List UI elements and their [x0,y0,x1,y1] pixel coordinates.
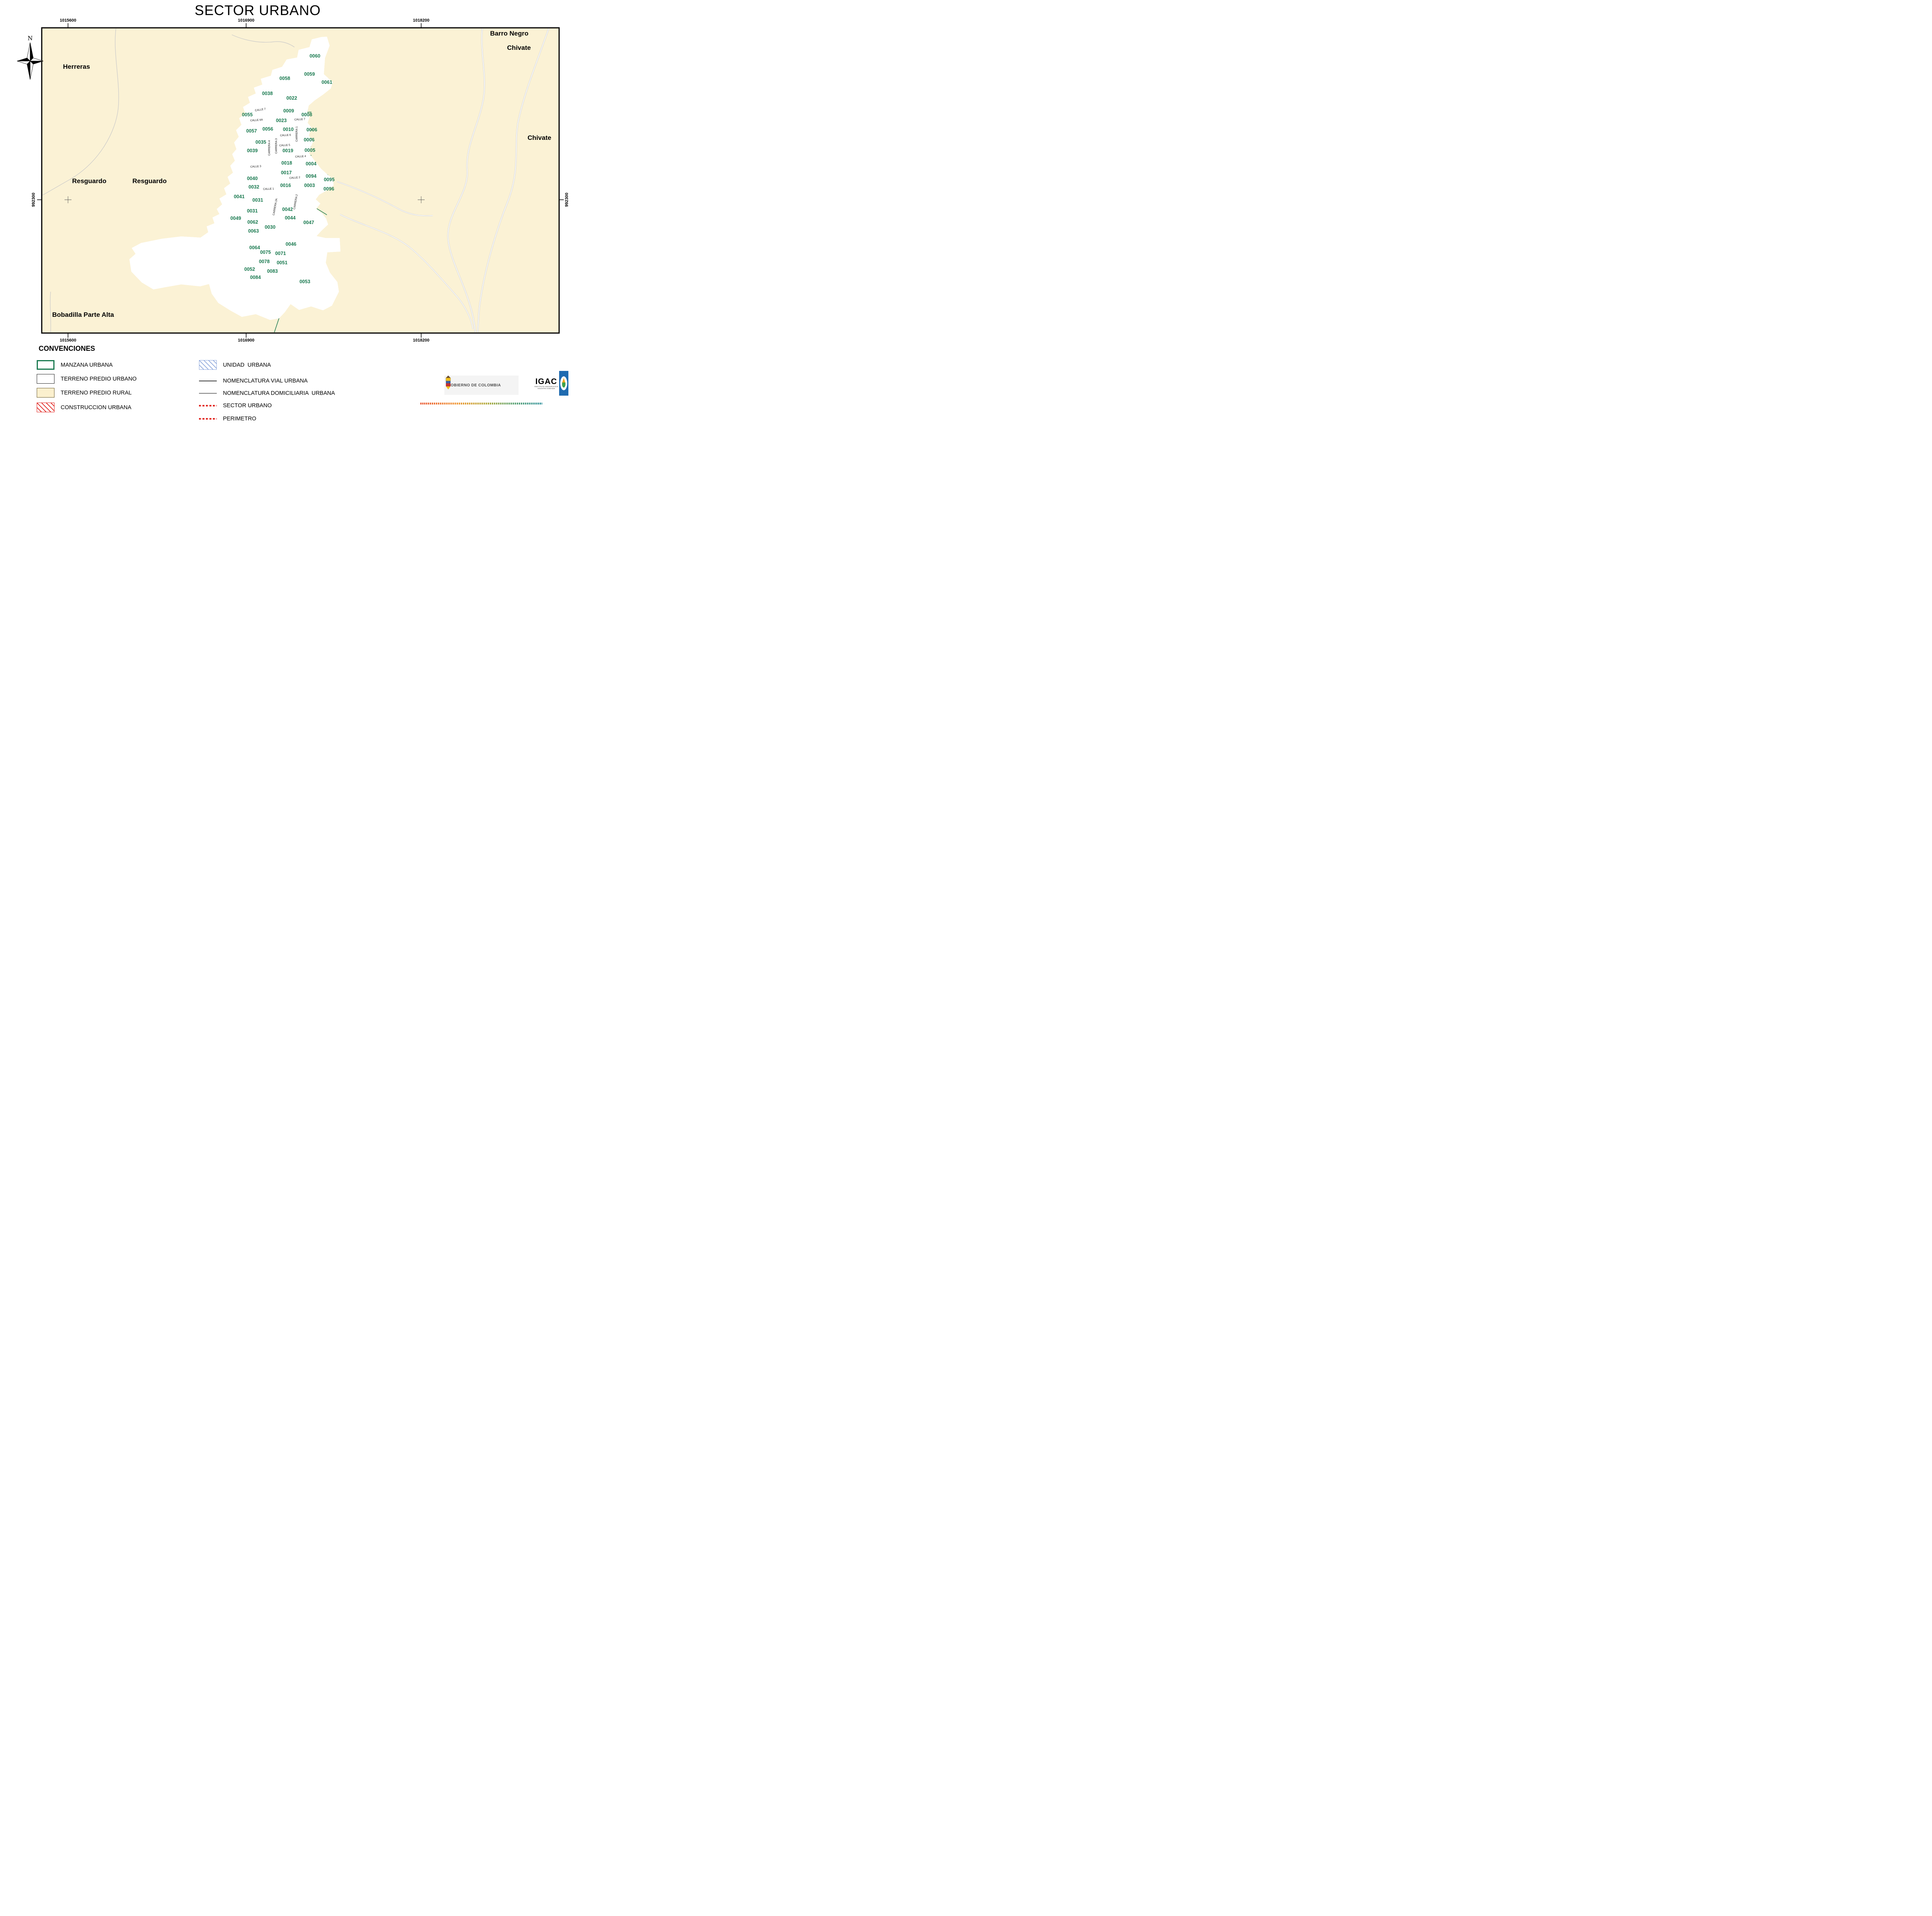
legend-label: TERRENO PREDIO URBANO [61,376,137,382]
legend-row-construccion: CONSTRUCCION URBANA [37,403,131,412]
nomenclatura-domiciliaria-swatch [199,393,217,394]
legend-row-sector: SECTOR URBANO [199,403,272,409]
terreno-predio-urbano-swatch [37,374,54,384]
page: SECTOR URBANO [0,0,603,425]
manzana-number-label: 0017 [281,170,292,175]
manzana-number-label: 0052 [244,267,255,272]
tick-label-top: 1016900 [238,18,255,23]
manzana-number-label: 0071 [275,251,286,256]
tick-label-top: 1015600 [60,18,77,23]
manzana-number-label: 0006 [306,127,317,133]
place-name-label: Herreras [63,63,90,70]
street-name-label: CARRERA 3 [275,138,278,154]
street-name-label: CALLE 5 [279,144,290,147]
place-name-label: Resguardo [72,177,107,185]
manzana-number-label: 0078 [259,259,270,264]
tick-label-right: 992300 [565,193,569,207]
manzana-number-label: 0083 [267,269,278,274]
manzana-number-label: 0055 [242,112,253,117]
manzana-number-label: 0019 [282,148,293,153]
north-compass-icon [17,43,43,80]
igac-emblem-icon [559,371,568,396]
manzana-number-label: 0030 [265,224,276,230]
street-name-label: CALLE 3 [250,165,261,168]
manzana-number-label: 0046 [286,241,296,247]
manzana-number-label: 0022 [286,95,297,101]
manzana-number-label: 0060 [310,53,320,59]
place-name-label: Chivate [507,44,531,51]
igac-text-block: IGAC INSTITUTO GEOGRAFICO AGUSTIN CODAZZ… [534,371,558,396]
manzana-number-label: 0053 [299,279,310,284]
manzana-number-label: 0047 [303,220,314,225]
manzana-number-label: 0018 [281,160,292,166]
legend-label: SECTOR URBANO [223,403,272,409]
manzana-number-label: 0084 [250,275,261,280]
legend-row-terreno-urbano: TERRENO PREDIO URBANO [37,374,137,384]
manzana-number-label: 0096 [323,186,334,192]
legend-row-vial: NOMENCLATURA VIAL URBANA [199,378,308,384]
manzana-number-label: 0003 [304,183,315,188]
manzana-number-label: 0032 [248,184,259,190]
construccion-urbana-swatch [37,403,54,412]
manzana-number-label: 0075 [260,250,271,255]
manzana-number-label: 0058 [279,76,290,81]
manzana-number-label: 0062 [247,219,258,225]
legend-label: NOMENCLATURA VIAL URBANA [223,378,308,384]
legend-row-perimetro: PERIMETRO [199,416,256,422]
footer-gradient-rule [420,403,543,405]
manzana-number-label: 0023 [276,118,287,123]
manzana-number-label: 0016 [280,183,291,188]
place-name-label: Barro Negro [490,30,528,37]
manzana-number-label: 0008 [301,112,312,117]
manzana-number-label: 0051 [277,260,287,265]
nomenclatura-vial-swatch [199,381,217,381]
legend-label: CONSTRUCCION URBANA [61,405,131,411]
manzana-number-label: 0009 [283,108,294,114]
manzana-number-label: 0038 [262,91,273,96]
manzana-number-label: 0063 [248,228,259,234]
manzana-number-label: 0044 [285,215,296,221]
tick-label-top: 1018200 [413,18,430,23]
tick-label-left: 992300 [31,193,36,207]
legend-label: TERRENO PREDIO RURAL [61,390,132,396]
manzana-number-label: 0042 [282,207,293,212]
street-name-label: CALLE 1 [263,188,274,191]
legend-label: UNIDAD URBANA [223,362,271,368]
manzana-number-label: 0064 [249,245,260,250]
legend-label: NOMENCLATURA DOMICILIARIA URBANA [223,390,335,396]
manzana-number-label: 0031 [247,208,258,214]
manzana-number-label: 0005 [304,148,315,153]
legend-label: MANZANA URBANA [61,362,113,368]
street-name-label: CALLE 4 [295,155,306,158]
legend-heading: CONVENCIONES [39,345,95,353]
legend-row-terreno-rural: TERRENO PREDIO RURAL [37,388,132,398]
igac-logo: IGAC INSTITUTO GEOGRAFICO AGUSTIN CODAZZ… [534,371,569,396]
manzana-number-label: 0039 [247,148,258,153]
manzana-number-label: 0006 [304,137,315,143]
street-name-label: CALLE 7 [294,118,305,121]
manzana-number-label: 0040 [247,176,258,181]
manzana-number-label: 0041 [234,194,245,199]
legend-row-domiciliaria: NOMENCLATURA DOMICILIARIA URBANA [199,390,335,396]
manzana-number-label: 0095 [324,177,335,182]
place-name-label: Bobadilla Parte Alta [52,311,114,318]
place-name-label: Resguardo [133,177,167,185]
manzana-number-label: 0049 [230,216,241,221]
gobierno-colombia-logo: GOBIERNO DE COLOMBIA [444,376,519,395]
manzana-urbana-swatch [37,360,54,370]
terreno-predio-rural-swatch [37,388,54,398]
igac-label: IGAC [535,378,557,386]
street-name-label: CARRERA 4 [268,140,271,156]
manzana-number-label: 0035 [255,139,266,145]
manzana-number-label: 0010 [283,127,294,132]
unidad-urbana-swatch [199,360,217,370]
manzana-number-label: 0031 [252,197,263,203]
manzana-number-label: 0059 [304,71,315,77]
tick-label-bottom: 1015600 [60,338,77,343]
street-name-label: CALLE 6 [280,134,291,137]
north-label: N [27,35,32,42]
place-name-label: Chivate [527,134,551,141]
legend-row-manzana: MANZANA URBANA [37,360,113,370]
igac-subtitle-2: AGUSTIN CODAZZI [537,388,555,389]
street-name-label: CARRERA 1 [296,126,298,142]
manzana-number-label: 0061 [321,80,332,85]
manzana-number-label: 0004 [306,161,316,167]
manzana-number-label: 0056 [262,126,273,132]
manzana-number-label: 0094 [306,173,316,179]
colombia-crest-icon [444,376,452,389]
tick-label-bottom: 1018200 [413,338,430,343]
sector-urbano-swatch [199,405,217,406]
perimetro-swatch [199,418,217,420]
gobierno-colombia-label: GOBIERNO DE COLOMBIA [447,383,501,388]
legend-label: PERIMETRO [223,416,256,422]
legend-row-unidad: UNIDAD URBANA [199,360,271,370]
manzana-number-label: 0057 [246,128,257,134]
tick-label-bottom: 1016900 [238,338,255,343]
